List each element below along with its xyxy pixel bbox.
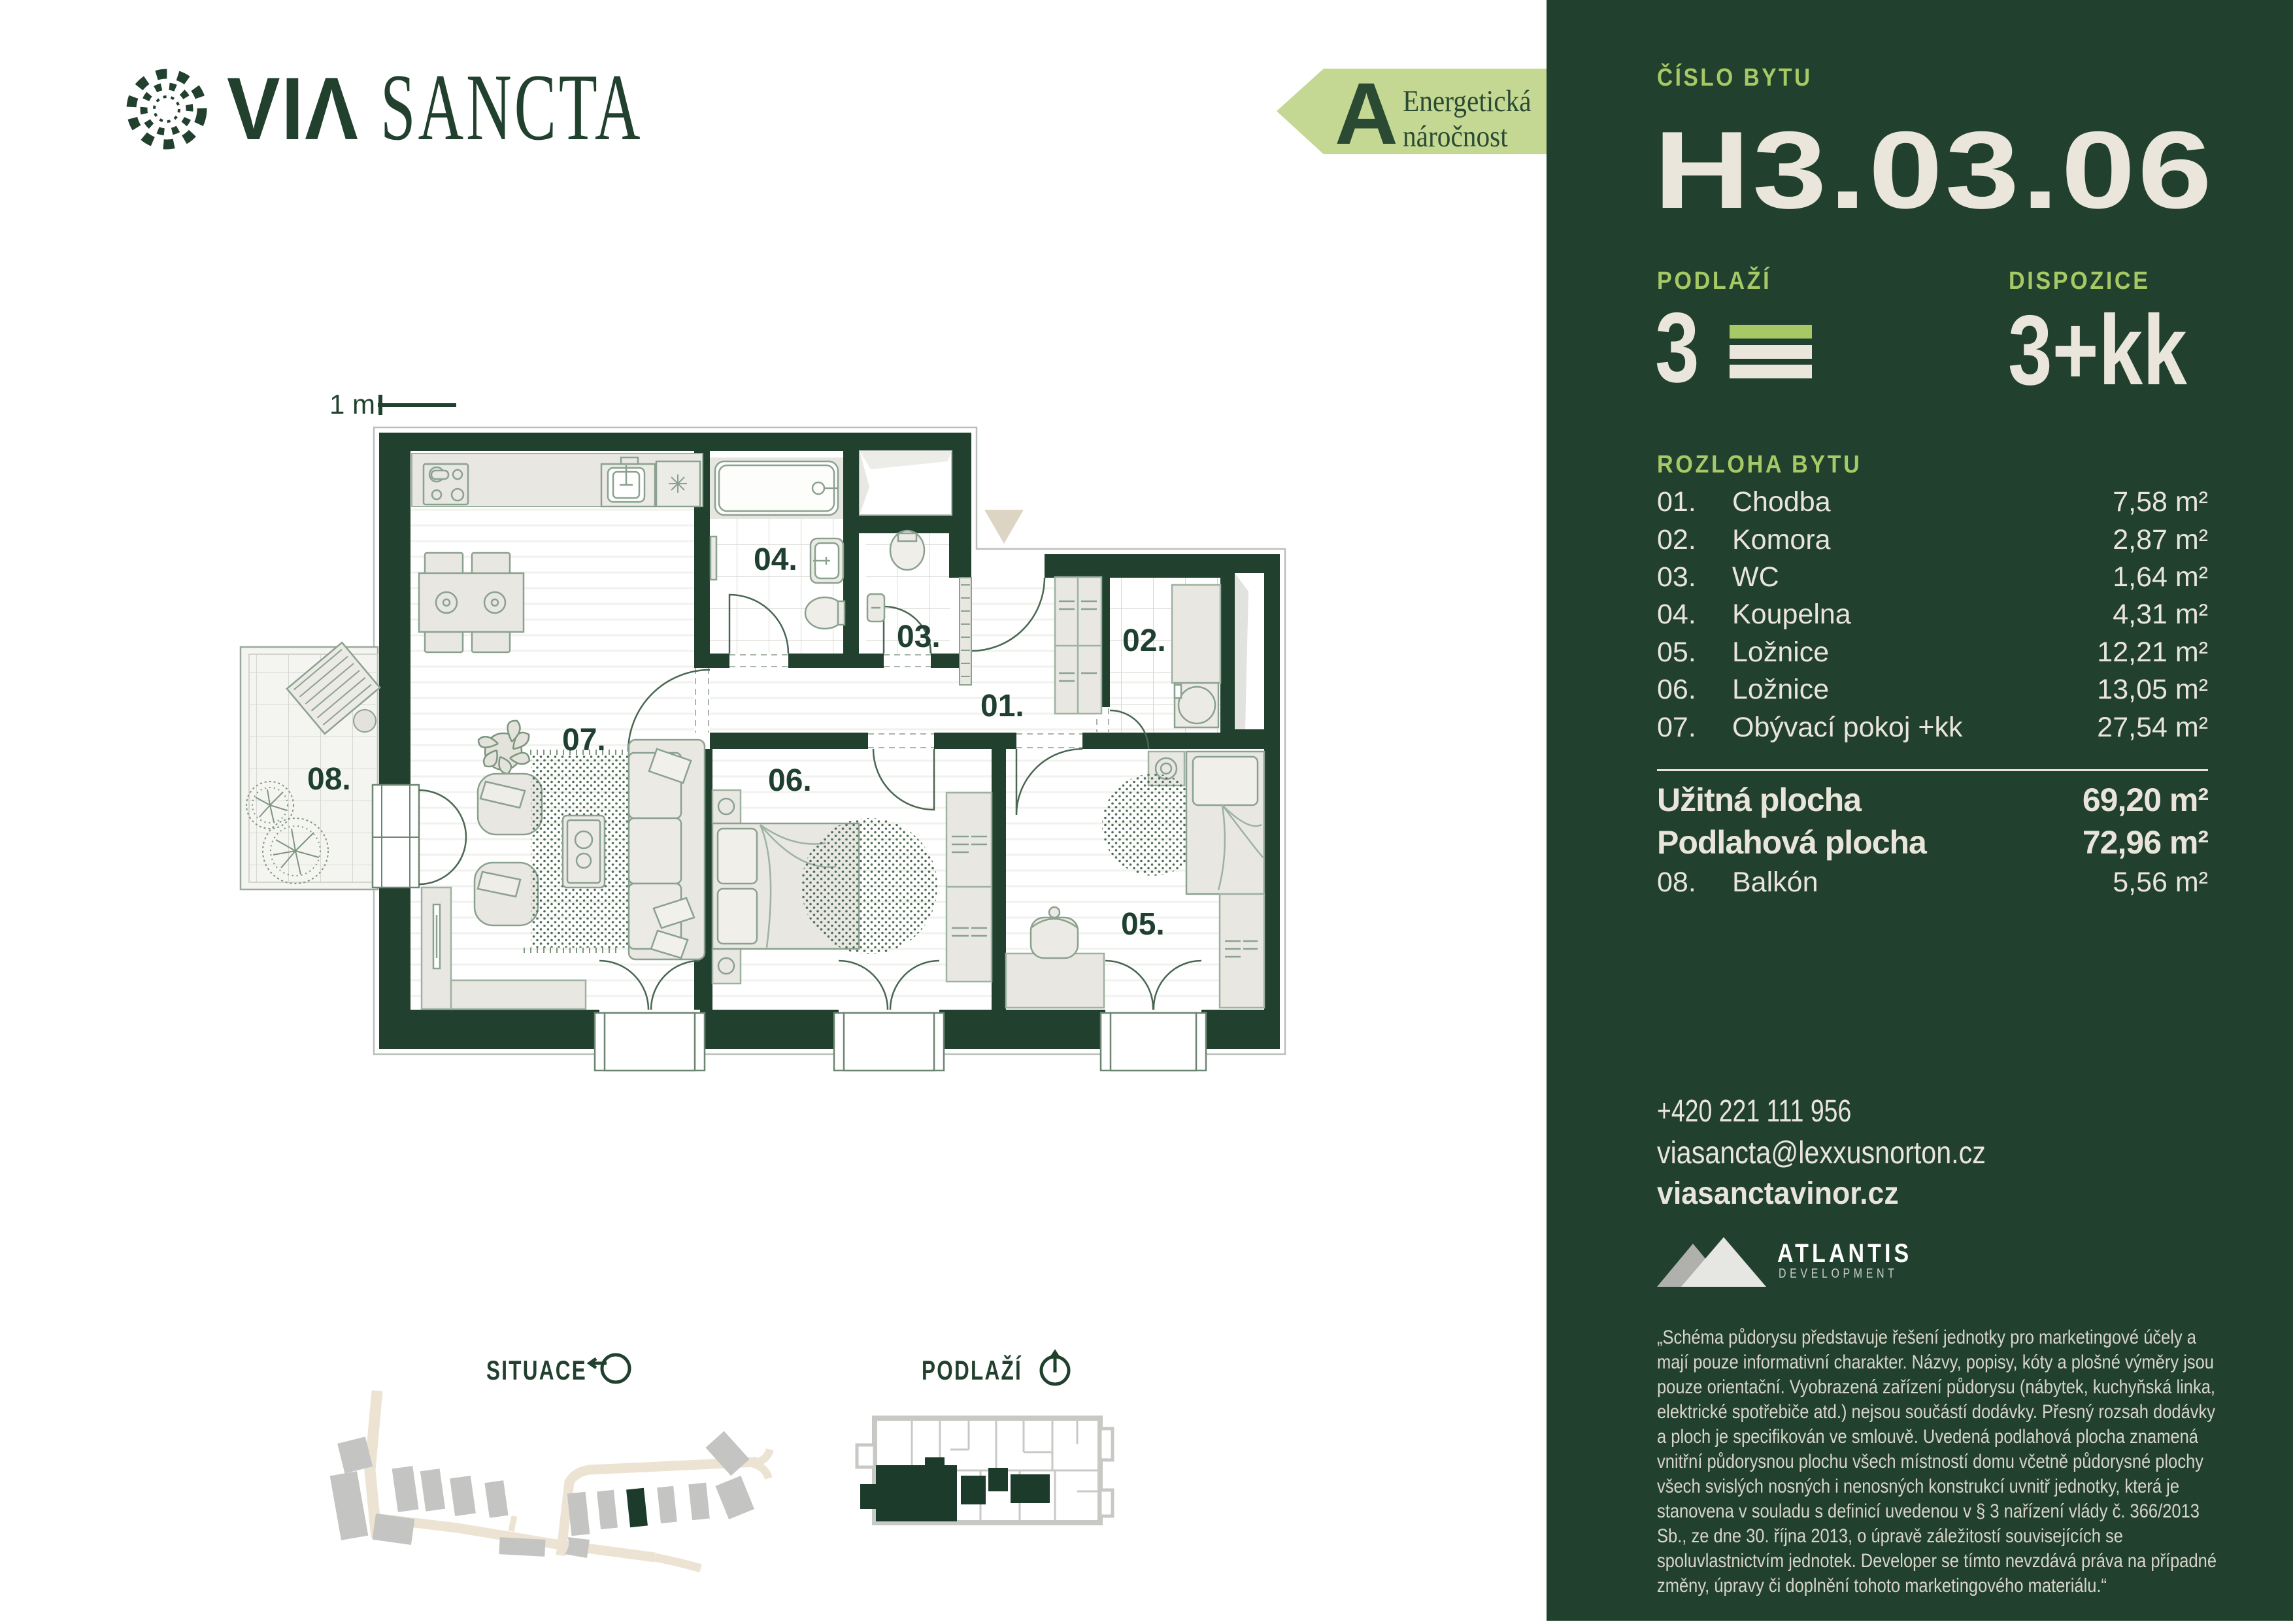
svg-text:mají pouze informativní charak: mají pouze informativní charakter. Názvy… [1657, 1351, 2214, 1373]
svg-text:01.: 01. [980, 689, 1024, 723]
svg-text:„Schéma půdorysu představuje ř: „Schéma půdorysu představuje řešení jedn… [1657, 1327, 2196, 1348]
svg-text:ATLANTIS: ATLANTIS [1777, 1238, 1912, 1267]
svg-text:72,96 m²: 72,96 m² [2083, 824, 2208, 861]
svg-text:5,56 m²: 5,56 m² [2113, 867, 2208, 898]
svg-text:Sb., ze dne 30. října 2013, o: Sb., ze dne 30. října 2013, o úpravě zál… [1657, 1525, 2123, 1547]
svg-text:4,31 m²: 4,31 m² [2113, 599, 2208, 630]
svg-text:69,20 m²: 69,20 m² [2083, 782, 2208, 818]
svg-text:Balkón: Balkón [1732, 867, 1818, 898]
svg-text:DEVELOPMENT: DEVELOPMENT [1779, 1266, 1898, 1280]
svg-text:1,64 m²: 1,64 m² [2113, 561, 2208, 593]
svg-text:Komora: Komora [1732, 524, 1831, 555]
svg-text:3: 3 [1655, 292, 1699, 403]
svg-text:elektrické spotřebiče atd.) ne: elektrické spotřebiče atd.) nejsou součá… [1657, 1401, 2215, 1423]
svg-text:12,21 m²: 12,21 m² [2097, 637, 2208, 668]
svg-text:PODLAŽÍ: PODLAŽÍ [1657, 265, 1771, 294]
svg-text:stanovena v souladu s definicí: stanovena v souladu s definicí uvedenou … [1657, 1500, 2200, 1522]
svg-text:změny, úpravy či doplnění toho: změny, úpravy či doplnění tohoto marketi… [1657, 1575, 2107, 1597]
svg-text:+420 221 111 956: +420 221 111 956 [1657, 1094, 1851, 1129]
svg-text:Užitná plocha: Užitná plocha [1657, 782, 1862, 818]
svg-text:27,54 m²: 27,54 m² [2097, 712, 2208, 743]
svg-text:02.: 02. [1122, 623, 1166, 658]
svg-text:07.: 07. [562, 723, 606, 757]
svg-text:07.: 07. [1657, 712, 1696, 743]
svg-text:Koupelna: Koupelna [1732, 599, 1851, 630]
svg-text:SANCTA: SANCTA [380, 54, 643, 160]
svg-text:H3.03.06: H3.03.06 [1654, 108, 2215, 231]
svg-text:7,58 m²: 7,58 m² [2113, 486, 2208, 518]
svg-text:viasanctavinor.cz: viasanctavinor.cz [1657, 1176, 1899, 1211]
svg-text:náročnost: náročnost [1403, 120, 1508, 154]
svg-text:pouze orientační. Vyobrazená z: pouze orientační. Vyobrazená zařízení pů… [1657, 1376, 2215, 1398]
svg-text:ROZLOHA BYTU: ROZLOHA BYTU [1657, 450, 1862, 478]
svg-text:viasancta@lexxusnorton.cz: viasancta@lexxusnorton.cz [1657, 1135, 1986, 1170]
svg-text:08.: 08. [307, 762, 351, 797]
svg-text:02.: 02. [1657, 524, 1696, 555]
svg-text:DISPOZICE: DISPOZICE [2009, 266, 2151, 294]
svg-text:Chodba: Chodba [1732, 486, 1831, 518]
svg-text:WC: WC [1732, 561, 1779, 593]
svg-text:04.: 04. [1657, 599, 1696, 630]
svg-text:03.: 03. [897, 620, 941, 654]
svg-text:Ložnice: Ložnice [1732, 674, 1829, 705]
svg-text:3+kk: 3+kk [2008, 295, 2187, 406]
svg-text:spoluvlastnictvím jednotek. De: spoluvlastnictvím jednotek. Developer se… [1657, 1550, 2217, 1572]
svg-text:a ploch je specifikován ve sml: a ploch je specifikován ve smlouvě. Uved… [1657, 1426, 2198, 1448]
svg-text:04.: 04. [754, 542, 797, 577]
svg-text:Podlahová plocha: Podlahová plocha [1657, 824, 1928, 861]
svg-text:1 m: 1 m [329, 389, 375, 420]
svg-text:13,05 m²: 13,05 m² [2097, 674, 2208, 705]
svg-text:SITUACE: SITUACE [486, 1355, 587, 1386]
svg-text:06.: 06. [1657, 674, 1696, 705]
svg-text:Obývací pokoj +kk: Obývací pokoj +kk [1732, 712, 1963, 743]
svg-text:08.: 08. [1657, 867, 1696, 898]
svg-text:05.: 05. [1657, 637, 1696, 668]
svg-text:01.: 01. [1657, 486, 1696, 518]
svg-text:05.: 05. [1121, 907, 1165, 942]
svg-text:2,87 m²: 2,87 m² [2113, 524, 2208, 555]
svg-text:06.: 06. [768, 763, 812, 798]
svg-text:všech svislých nosných i nenos: všech svislých nosných i nenosných konst… [1657, 1476, 2179, 1497]
svg-text:vnitřní půdorysnou plochu všec: vnitřní půdorysnou plochu všech místnost… [1657, 1451, 2203, 1472]
svg-text:Ložnice: Ložnice [1732, 637, 1829, 668]
svg-text:Energetická: Energetická [1403, 84, 1531, 118]
svg-text:VIΛ: VIΛ [227, 59, 360, 158]
svg-text:A: A [1335, 65, 1398, 163]
svg-text:ČÍSLO BYTU: ČÍSLO BYTU [1657, 63, 1813, 91]
svg-text:PODLAŽÍ: PODLAŽÍ [922, 1355, 1022, 1386]
svg-text:03.: 03. [1657, 561, 1696, 593]
